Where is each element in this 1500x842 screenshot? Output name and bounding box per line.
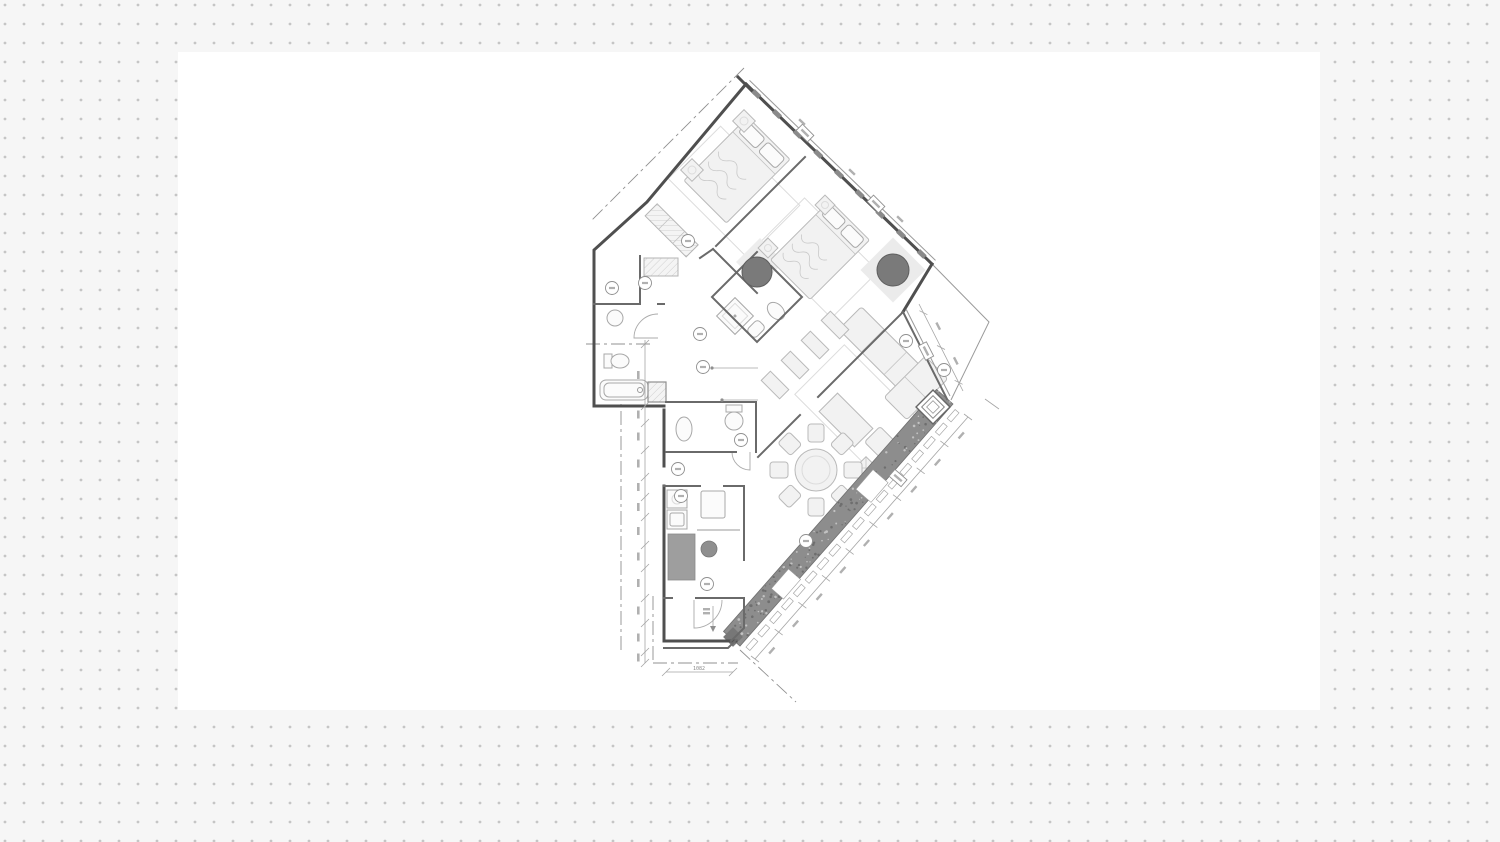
dining-table	[795, 449, 837, 491]
floor-plan-drawing: 1082	[0, 0, 1500, 842]
drawing-canvas: 1082	[0, 0, 1500, 842]
kitchen-island	[668, 534, 695, 580]
kitchen-sink	[701, 541, 717, 557]
bottom-dimension-label: 1082	[693, 666, 705, 672]
shaft	[648, 382, 666, 402]
